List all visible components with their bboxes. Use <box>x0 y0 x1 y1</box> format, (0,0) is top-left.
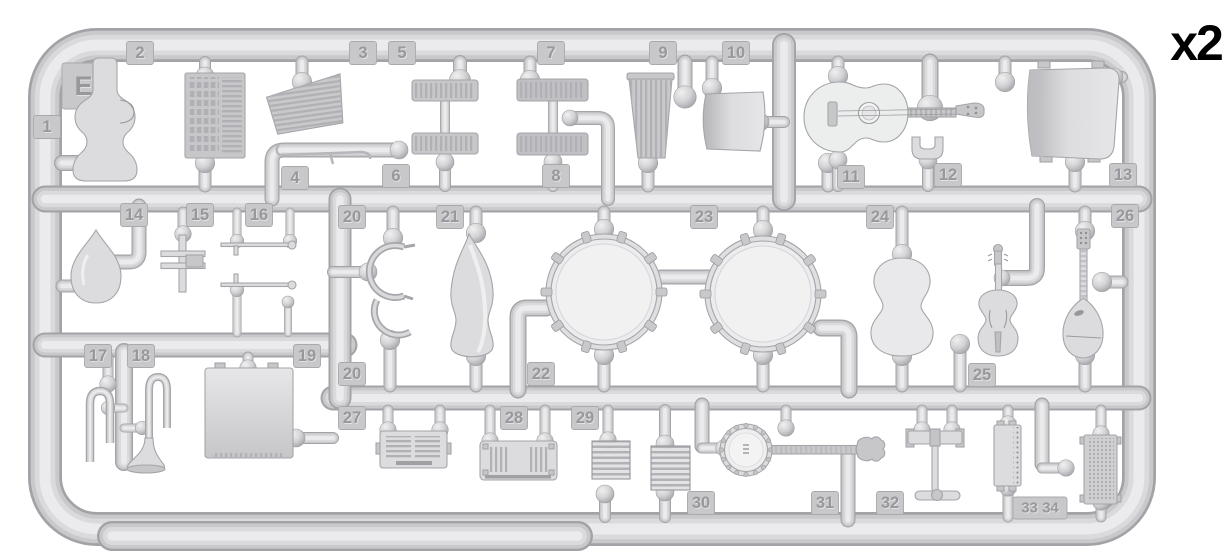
part-tag-29: 2929 <box>572 407 599 430</box>
svg-text:11: 11 <box>842 168 859 186</box>
part-22-drum <box>541 231 667 353</box>
part-tag-28: 2828 <box>501 407 528 430</box>
svg-text:26: 26 <box>1116 207 1134 225</box>
part-tag-30: 3030 <box>688 492 715 515</box>
banjo-lug <box>744 472 748 476</box>
banjo-lug <box>719 448 723 452</box>
guitar-bridge <box>828 102 837 126</box>
part-10-curved-panel <box>703 92 765 151</box>
part-tag-13: 1313 <box>1110 164 1137 187</box>
banjo-lug <box>744 423 748 427</box>
svg-text:10: 10 <box>727 44 745 62</box>
svg-text:20: 20 <box>343 208 361 226</box>
banjo-lug <box>766 438 770 442</box>
drum-lug <box>700 290 711 298</box>
banjo-lug <box>734 470 738 474</box>
banjo-lug <box>727 431 731 435</box>
part-tag-20-bottom: 2020 <box>339 363 366 386</box>
svg-text:5: 5 <box>397 44 406 62</box>
svg-text:20: 20 <box>343 365 361 383</box>
part-tag-6: 66 <box>383 165 410 188</box>
svg-text:30: 30 <box>692 494 710 512</box>
sprue-diagram: 1122335577991010446688111112121313141415… <box>0 0 1232 560</box>
part-tag-14: 1414 <box>121 204 148 227</box>
svg-text:16: 16 <box>250 206 268 224</box>
part-28-vented-box <box>480 441 557 480</box>
part-tag-18: 1818 <box>128 345 155 368</box>
svg-text:8: 8 <box>551 167 560 185</box>
part-14-teardrop-body <box>71 230 121 303</box>
part-25-violin <box>978 245 1018 357</box>
part-2-accordion-keyboard-panel <box>185 73 245 158</box>
mandolin-headstock <box>1077 229 1090 249</box>
svg-text:6: 6 <box>391 167 400 185</box>
ball-joint <box>562 110 578 126</box>
part-tag-2: 22 <box>127 42 154 65</box>
part-34-mesh-grille <box>1080 435 1121 504</box>
part-tag-31: 3131 <box>812 492 839 515</box>
banjo-lug <box>753 470 757 474</box>
gate-bulb <box>778 420 795 437</box>
part-17-u-shaped-tube <box>90 391 110 462</box>
part-12-small-bracket <box>912 137 943 159</box>
svg-text:4: 4 <box>290 169 300 187</box>
part-tag-26: 2626 <box>1112 205 1139 228</box>
part-11-acoustic-guitar <box>804 82 984 152</box>
svg-text:12: 12 <box>939 166 957 184</box>
part-30-bellows-stack <box>651 446 690 490</box>
part-23-drum <box>700 233 826 355</box>
svg-text:15: 15 <box>191 206 209 224</box>
drum-lug <box>541 288 552 296</box>
part-29-bellows-stack <box>592 441 630 479</box>
part-tag-22: 2222 <box>528 363 555 386</box>
part-tag-32: 3232 <box>877 492 904 515</box>
svg-text:25: 25 <box>973 366 991 384</box>
part-tag-1: 11 <box>34 116 61 139</box>
gate-bulb <box>674 86 697 109</box>
svg-text:19: 19 <box>298 347 316 365</box>
svg-text:29: 29 <box>576 409 594 427</box>
part-tag-33-34: 33 3433 34 <box>1013 497 1067 519</box>
gate-bulb <box>436 153 454 171</box>
gate-bulb <box>1092 272 1112 292</box>
gate-bulb <box>1058 460 1075 477</box>
svg-text:1: 1 <box>42 118 51 136</box>
svg-text:18: 18 <box>132 347 150 365</box>
part-tag-10: 1010 <box>723 42 750 65</box>
part-tag-20-top: 2020 <box>339 206 366 229</box>
gate-bulb <box>950 334 970 354</box>
gate-bulb <box>282 296 294 308</box>
part-tag-12: 1212 <box>935 164 962 187</box>
svg-text:7: 7 <box>546 44 555 62</box>
gate-bulb <box>596 485 614 503</box>
part-20-c-shaped-hooks <box>369 245 415 335</box>
elbow-tube <box>1004 206 1037 278</box>
svg-text:13: 13 <box>1114 166 1132 184</box>
part-8-slatted-bar <box>517 133 588 155</box>
svg-text:28: 28 <box>505 409 523 427</box>
banjo-lug <box>761 431 765 435</box>
part-24-guitar-body-back <box>871 258 933 356</box>
part-tag-19: 1919 <box>294 345 321 368</box>
part-21-instrument-case-lid <box>451 234 493 357</box>
svg-text:17: 17 <box>89 347 107 365</box>
ball-joint <box>390 141 408 159</box>
part-tag-3: 33 <box>350 42 377 65</box>
svg-text:32: 32 <box>881 494 899 512</box>
svg-text:2: 2 <box>135 44 144 62</box>
banjo-lug <box>761 465 765 469</box>
part-33-riveted-plate <box>994 421 1021 491</box>
svg-text:27: 27 <box>343 409 361 427</box>
svg-text:22: 22 <box>532 365 550 383</box>
svg-text:3: 3 <box>358 44 367 62</box>
svg-text:24: 24 <box>871 208 890 226</box>
svg-text:21: 21 <box>441 208 459 226</box>
drum-arm <box>821 328 849 390</box>
part-26-mandolin <box>1063 229 1103 358</box>
part-tag-8: 88 <box>543 165 570 188</box>
violin-tailpiece <box>995 332 1001 352</box>
part-9-pleated-bellows <box>627 73 674 158</box>
part-15-valve-cross-piece <box>161 235 205 292</box>
banjo-headstock <box>856 437 885 461</box>
part-tag-9: 99 <box>650 42 677 65</box>
part-tag-7: 77 <box>538 42 565 65</box>
svg-text:23: 23 <box>695 208 713 226</box>
part-16-thin-rods <box>221 241 296 289</box>
part-tag-27: 2727 <box>339 407 366 430</box>
part-tag-11: 1111 <box>838 166 865 189</box>
quantity-label: x2 <box>1162 14 1230 72</box>
part-tag-4: 44 <box>282 167 309 190</box>
part-tag-15: 1515 <box>187 204 214 227</box>
gate-bulb <box>995 72 1015 92</box>
drum-head <box>715 246 811 342</box>
part-tag-17: 1717 <box>85 345 112 368</box>
drum-lug <box>815 290 826 298</box>
drum-lug <box>656 288 667 296</box>
banjo-lug <box>721 438 725 442</box>
part-31-banjo <box>719 423 884 476</box>
part-32-stand-base <box>906 429 964 501</box>
banjo-head <box>719 423 772 476</box>
part-7-slatted-bar <box>517 79 588 101</box>
svg-text:31: 31 <box>816 494 834 512</box>
part-tag-23: 2323 <box>691 206 718 229</box>
drum-head <box>556 244 652 340</box>
part-13-curved-shell-panel <box>1027 61 1119 162</box>
guitar-headstock <box>956 103 984 117</box>
banjo-lug <box>734 425 738 429</box>
part-tag-5: 55 <box>389 42 416 65</box>
part-tag-25: 2525 <box>969 364 996 387</box>
part-19-large-box-panel <box>205 363 293 458</box>
banjo-lug <box>721 457 725 461</box>
part-tag-24: 2424 <box>867 206 894 229</box>
svg-text:9: 9 <box>658 44 667 62</box>
part-tag-16: 1616 <box>246 204 273 227</box>
part-5-slatted-bar <box>412 80 478 101</box>
banjo-lug <box>753 425 757 429</box>
sprue-photo: 1122335577991010446688111112121313141415… <box>0 0 1232 560</box>
svg-text:33 34: 33 34 <box>1021 500 1059 517</box>
banjo-lug <box>727 465 731 469</box>
part-tag-21: 2121 <box>437 206 464 229</box>
banjo-lug <box>766 457 770 461</box>
violin-neck <box>996 264 1002 292</box>
mandolin-body <box>1063 298 1103 358</box>
svg-text:14: 14 <box>125 206 144 224</box>
part-27-louvered-box <box>376 431 451 468</box>
part-6-slatted-bar <box>412 133 478 154</box>
